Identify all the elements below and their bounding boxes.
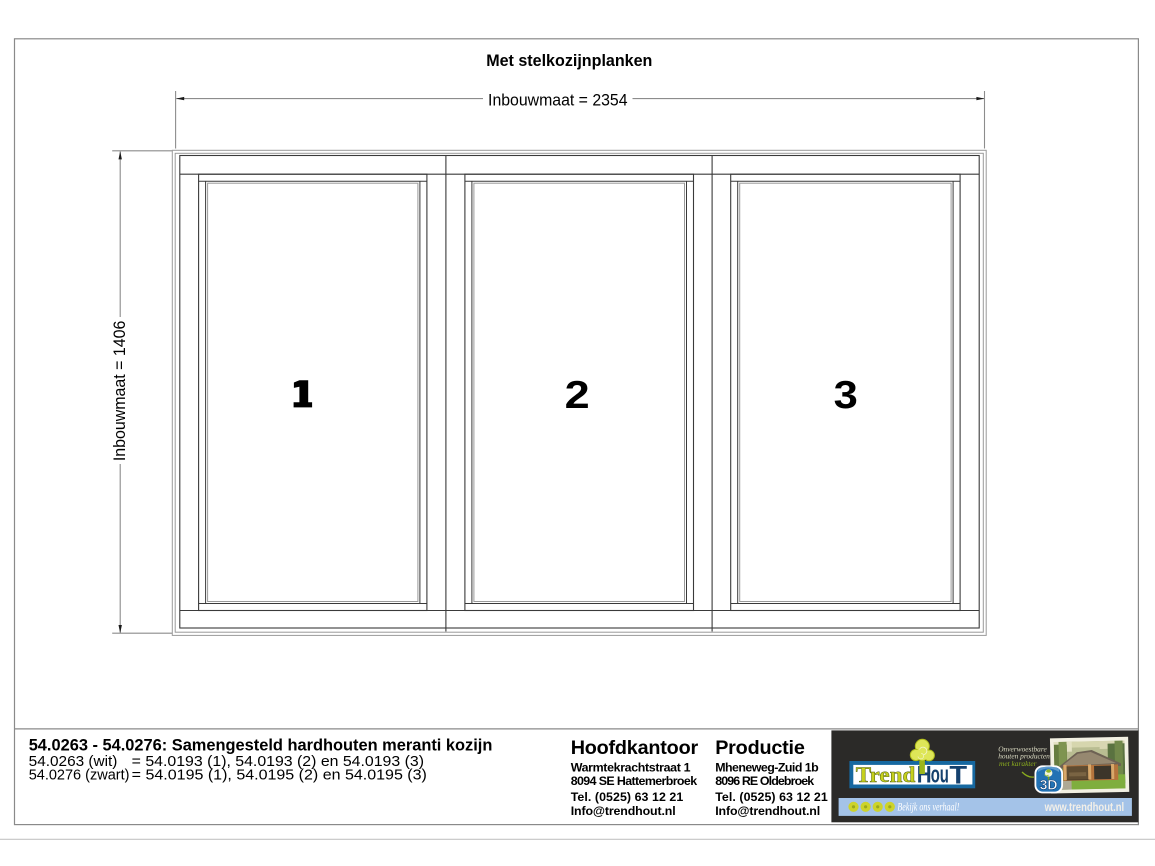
- svg-text:8096 RE Oldebroek: 8096 RE Oldebroek: [715, 774, 814, 788]
- svg-text:Bekijk ons verhaal!: Bekijk ons verhaal!: [897, 799, 959, 813]
- svg-text:Warmtekrachtstraat 1: Warmtekrachtstraat 1: [571, 760, 691, 774]
- svg-text:54.0276 (zwart): 54.0276 (zwart): [29, 766, 130, 783]
- svg-text:Inbouwmaat = 2354: Inbouwmaat = 2354: [488, 92, 628, 110]
- svg-text:Met stelkozijnplanken: Met stelkozijnplanken: [486, 52, 652, 70]
- svg-text:Inbouwmaat = 1406: Inbouwmaat = 1406: [111, 321, 129, 462]
- svg-text:= 54.0195 (1), 54.0195 (2) en: = 54.0195 (1), 54.0195 (2) en 54.0195 (3…: [132, 766, 427, 783]
- svg-text:Trend: Trend: [856, 762, 916, 787]
- svg-text:met karakter: met karakter: [999, 759, 1037, 768]
- svg-text:Productie: Productie: [715, 737, 805, 759]
- svg-text:Info@trendhout.nl: Info@trendhout.nl: [715, 804, 820, 818]
- svg-text:3: 3: [834, 373, 858, 416]
- svg-text:Mheneweg-Zuid 1b: Mheneweg-Zuid 1b: [715, 760, 819, 774]
- svg-text:Hoofdkantoor: Hoofdkantoor: [571, 737, 699, 759]
- svg-text:www.trendhout.nl: www.trendhout.nl: [1044, 800, 1124, 814]
- svg-text:Info@trendhout.nl: Info@trendhout.nl: [571, 804, 676, 818]
- svg-text:ou: ou: [931, 762, 949, 788]
- svg-text:8094 SE Hattemerbroek: 8094 SE Hattemerbroek: [571, 774, 697, 788]
- svg-text:T: T: [949, 760, 967, 789]
- svg-text:3D: 3D: [1040, 777, 1058, 793]
- svg-text:54.0263 - 54.0276: Samengestel: 54.0263 - 54.0276: Samengesteld hardhout…: [29, 737, 493, 755]
- svg-text:2: 2: [565, 373, 590, 416]
- svg-text:Tel. (0525) 63 12 21: Tel. (0525) 63 12 21: [715, 790, 828, 804]
- svg-text:Tel. (0525) 63 12 21: Tel. (0525) 63 12 21: [571, 790, 684, 804]
